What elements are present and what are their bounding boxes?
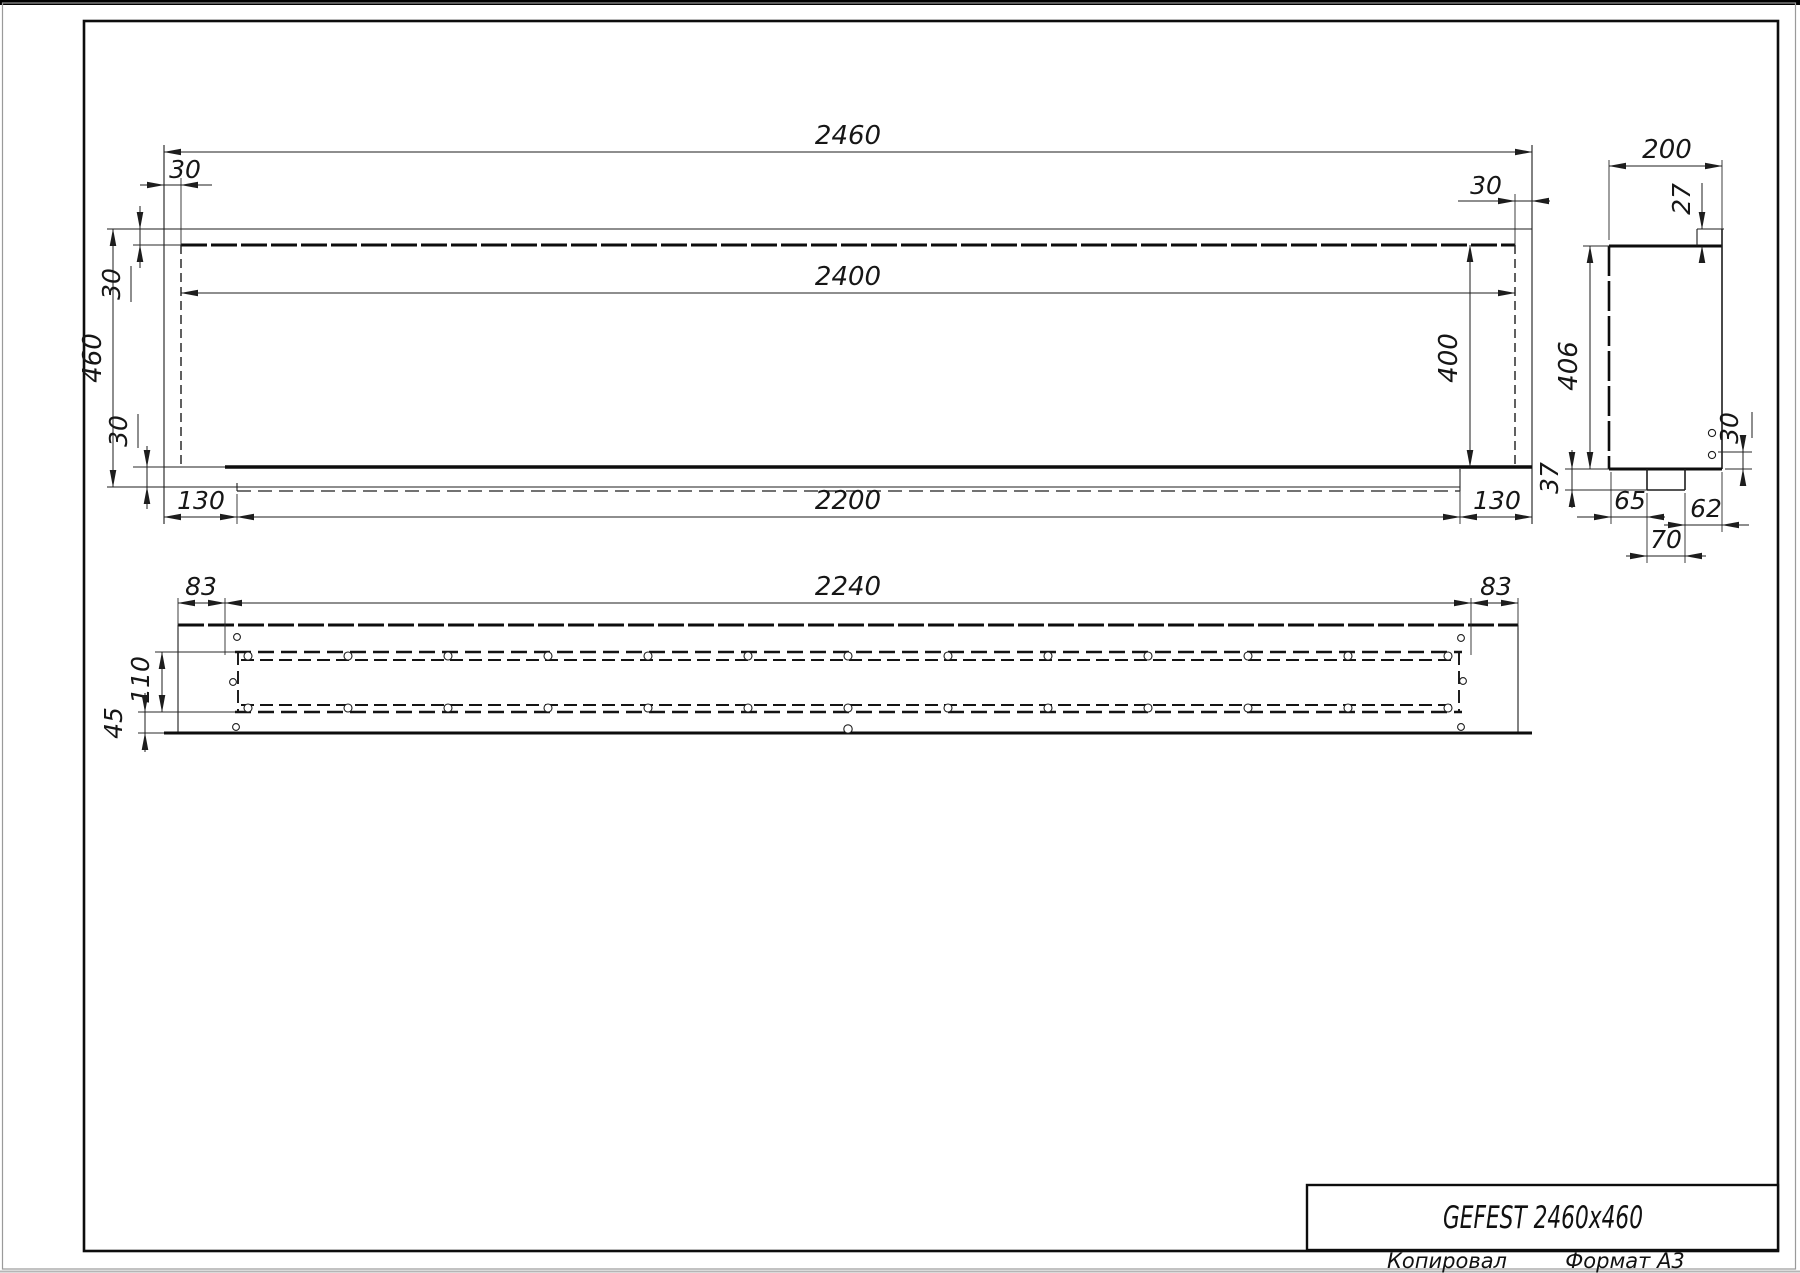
title-block-product: GEFEST 2460x460 xyxy=(1443,1200,1643,1236)
dim-top-slot-length: 2240 xyxy=(815,572,881,602)
front-view: 2460 30 2400 30 460 30 400 30 130 xyxy=(78,121,1550,524)
dim-front-flange-top-right: 30 xyxy=(1470,171,1502,200)
dim-front-flange-lower: 30 xyxy=(104,415,133,447)
margin-holes xyxy=(230,634,1467,734)
drawing-sheet: 2460 30 2400 30 460 30 400 30 130 xyxy=(0,0,1800,1273)
dim-side-front-lip: 27 xyxy=(1667,183,1696,215)
drawing-canvas: 2460 30 2400 30 460 30 400 30 130 xyxy=(0,0,1800,1273)
sheet-frame xyxy=(0,0,1800,1272)
dim-front-bottom-width: 2200 xyxy=(815,486,881,516)
dim-side-foot-width: 70 xyxy=(1650,525,1682,554)
dim-side-foot-height: 37 xyxy=(1535,462,1564,494)
side-view: 200 27 406 37 30 65 62 70 xyxy=(1535,135,1752,563)
title-block-copied-label: Копировал xyxy=(1387,1249,1507,1273)
top-view: 83 2240 83 110 45 xyxy=(99,572,1532,752)
dim-side-depth: 200 xyxy=(1642,135,1692,165)
dim-top-slot-width: 110 xyxy=(126,656,155,704)
dim-front-flange-upper: 30 xyxy=(97,268,126,300)
dim-front-width-total: 2460 xyxy=(815,121,881,151)
dim-front-flange-top-left: 30 xyxy=(169,155,201,184)
dim-front-bottom-right-offset: 130 xyxy=(1473,486,1521,515)
dim-top-margin-left: 83 xyxy=(185,572,217,601)
slot-holes xyxy=(244,652,1452,712)
dim-front-bottom-left-offset: 130 xyxy=(177,486,225,515)
dim-top-front-margin: 45 xyxy=(99,707,128,739)
dim-side-foot-right-offset: 62 xyxy=(1690,494,1722,523)
dim-front-opening-height: 400 xyxy=(1434,333,1464,383)
title-block: GEFEST 2460x460 Копировал Формат А3 xyxy=(1307,1185,1778,1273)
dim-front-width-inner: 2400 xyxy=(815,262,881,292)
dim-side-body-height: 406 xyxy=(1554,341,1584,391)
title-block-format-label: Формат А3 xyxy=(1565,1249,1685,1273)
dim-side-foot-left-offset: 65 xyxy=(1614,486,1646,515)
dim-front-height-total: 460 xyxy=(78,333,108,383)
dim-top-margin-right: 83 xyxy=(1480,572,1512,601)
dim-side-hole-offset: 30 xyxy=(1715,412,1744,444)
